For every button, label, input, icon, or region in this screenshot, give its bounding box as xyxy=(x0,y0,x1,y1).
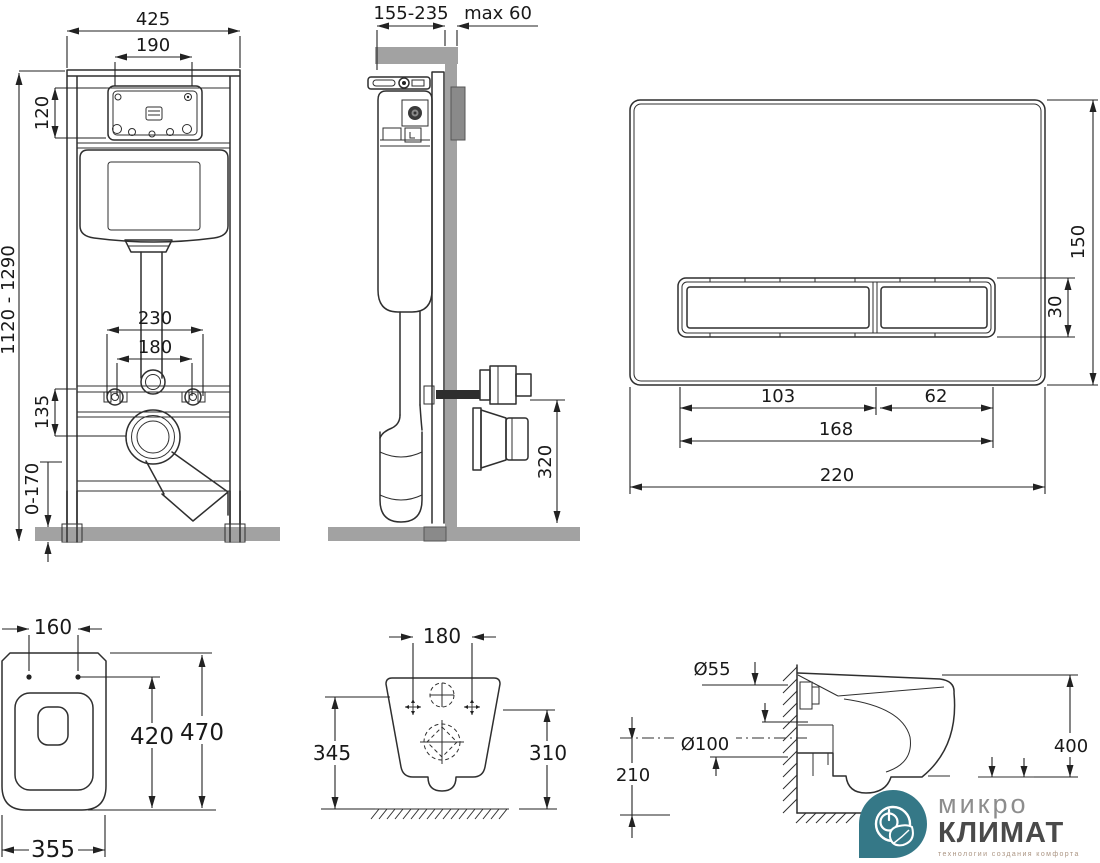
brand-logo: микро КЛИМАТ технологии создания комфорт… xyxy=(856,785,1100,863)
dim-wall-max: max 60 xyxy=(464,3,532,24)
brand-name-top: микро xyxy=(938,791,1080,818)
dimensions-bowl-rear: 180 345 310 xyxy=(309,621,571,809)
dim-inlet-diameter: Ø55 xyxy=(693,659,730,680)
dim-bolt-spacing: 180 xyxy=(138,337,172,358)
dim-inner-length: 420 xyxy=(130,724,174,750)
flush-buttons xyxy=(678,278,995,337)
dim-depth-range: 155-235 xyxy=(373,3,448,24)
wall-hatch xyxy=(783,665,862,823)
brand-tagline: технологии создания комфорта xyxy=(938,851,1080,858)
bowl-top-view: 160 470 420 355 xyxy=(0,605,310,863)
dim-height-right: 310 xyxy=(529,741,567,765)
frame-structure xyxy=(62,70,245,542)
brand-name-bottom: КЛИМАТ xyxy=(938,819,1080,848)
frame-front-view: 425 190 120 1120 - 1290 230 180 135 xyxy=(0,0,310,600)
dim-rear-bolt-spacing: 180 xyxy=(423,624,461,648)
ceiling-slab xyxy=(375,47,458,64)
wall-fittings xyxy=(424,366,531,470)
dim-outlet-height: 320 xyxy=(535,445,556,479)
frame-side-view: 155-235 max 60 320 xyxy=(320,0,605,600)
dim-bowl-width: 355 xyxy=(31,837,75,863)
floor-side xyxy=(328,527,580,541)
inspection-window xyxy=(108,86,202,140)
flush-plate-view: 150 30 103 62 168 220 xyxy=(615,75,1100,515)
small-flush-button xyxy=(881,287,987,328)
dim-outlet-center-height: 210 xyxy=(616,765,650,786)
dim-outlet-drop: 135 xyxy=(32,395,53,429)
plate-housing xyxy=(451,87,465,140)
technical-drawing-canvas: 425 190 120 1120 - 1290 230 180 135 xyxy=(0,0,1100,863)
dim-height-left: 345 xyxy=(313,741,351,765)
dimensions-side: 155-235 max 60 320 xyxy=(373,3,565,523)
dim-hole-spacing: 160 xyxy=(34,615,72,639)
dim-frame-height: 1120 - 1290 xyxy=(0,245,19,355)
dim-rim-height: 400 xyxy=(1054,736,1088,757)
floor-hatch-rear xyxy=(371,809,509,819)
bowl-rear-outline xyxy=(386,678,500,791)
dim-plate-height: 150 xyxy=(1068,225,1089,259)
big-flush-button xyxy=(687,287,869,328)
water-inlet xyxy=(141,370,165,394)
dim-rod-spacing: 230 xyxy=(138,308,172,329)
outlet-bend xyxy=(126,410,228,521)
dim-plate-width: 220 xyxy=(820,465,854,486)
cistern-side xyxy=(378,91,432,312)
flush-pipe-trap xyxy=(380,312,422,522)
dim-outlet-diameter: Ø100 xyxy=(681,734,730,755)
dim-window-width: 190 xyxy=(136,35,170,56)
dim-leg-adjust: 0-170 xyxy=(22,463,43,515)
mounting-bolts xyxy=(104,389,205,405)
floor-front xyxy=(35,527,280,541)
dimensions-front: 425 190 120 1120 - 1290 230 180 135 xyxy=(0,9,240,562)
dim-left-button: 103 xyxy=(761,386,795,407)
dim-bowl-length: 470 xyxy=(180,720,224,746)
dimensions-bowl-top: 160 470 420 355 xyxy=(2,613,225,863)
plate-body xyxy=(630,100,1045,385)
dim-buttons-width: 168 xyxy=(819,419,853,440)
dimensions-plate: 150 30 103 62 168 220 xyxy=(630,100,1098,494)
dim-frame-width: 425 xyxy=(136,9,170,30)
dim-button-height: 30 xyxy=(1045,296,1066,319)
dim-window-height: 120 xyxy=(32,96,53,130)
brand-mark-icon xyxy=(856,787,930,861)
top-bracket xyxy=(368,77,430,89)
bowl-rear-view: 180 345 310 xyxy=(305,605,600,863)
dim-right-button: 62 xyxy=(925,386,948,407)
